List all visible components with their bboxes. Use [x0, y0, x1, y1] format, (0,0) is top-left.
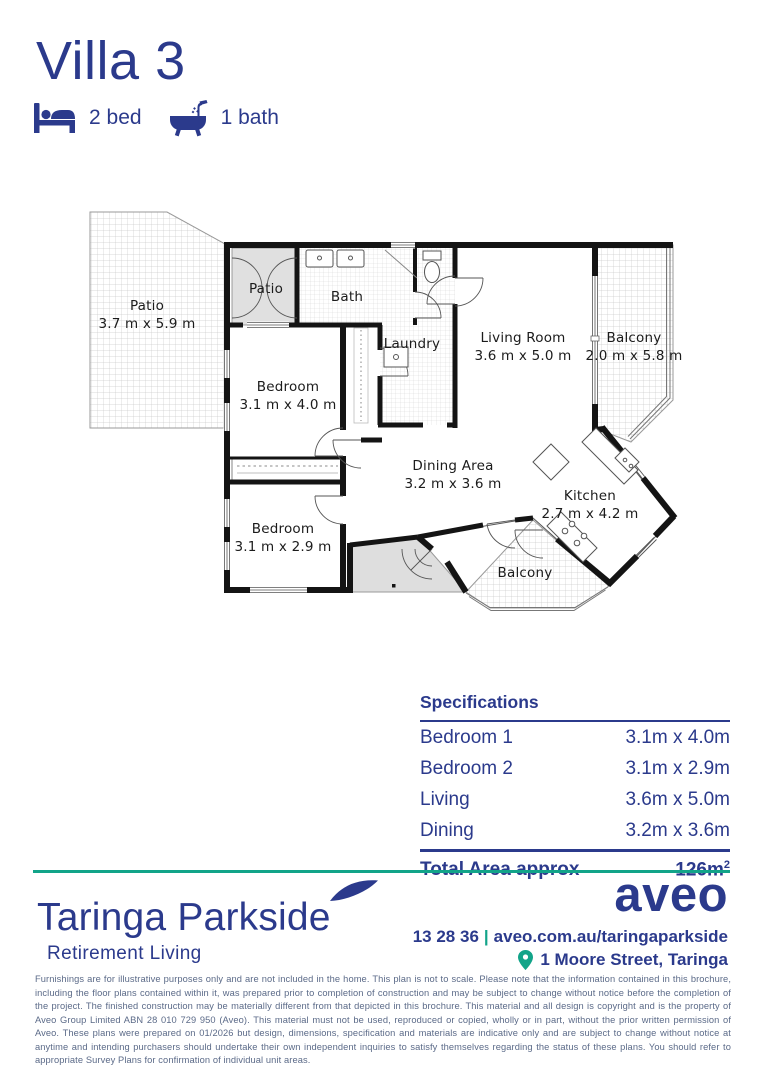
- community-logo: Taringa Parkside: [37, 896, 331, 940]
- bath-icon: [168, 99, 210, 137]
- location-pin-icon: [518, 950, 533, 970]
- address-text: 1 Moore Street, Taringa: [540, 950, 728, 970]
- contact-separator: |: [479, 927, 494, 946]
- room-label-laundry: Laundry: [384, 335, 440, 353]
- feature-bath: 1 bath: [168, 99, 279, 137]
- website: aveo.com.au/taringaparkside: [494, 927, 728, 946]
- specifications-title: Specifications: [420, 692, 730, 722]
- phone-number: 13 28 36: [413, 927, 479, 946]
- table-row: Living 3.6m x 5.0m: [420, 784, 730, 815]
- spec-value: 3.6m x 5.0m: [625, 789, 730, 811]
- spec-label: Bedroom 2: [420, 758, 513, 780]
- floor-plan-drawing: [85, 200, 705, 645]
- room-label-dining: Dining Area3.2 m x 3.6 m: [405, 457, 502, 493]
- leaf-icon: [328, 879, 380, 908]
- brochure-page: Villa 3 2 bed: [0, 0, 764, 1080]
- room-label-balcony-right: Balcony2.0 m x 5.8 m: [586, 329, 683, 365]
- spec-value: 3.1m x 2.9m: [625, 758, 730, 780]
- spec-label: Dining: [420, 820, 474, 842]
- room-label-bedroom-1: Bedroom3.1 m x 4.0 m: [240, 378, 337, 414]
- spec-value: 3.2m x 3.6m: [625, 820, 730, 842]
- aveo-logo: aveo: [614, 869, 728, 921]
- page-title: Villa 3: [36, 30, 186, 92]
- feature-bed-label: 2 bed: [89, 106, 142, 130]
- community-tagline: Retirement Living: [47, 943, 202, 965]
- contact-line: 13 28 36|aveo.com.au/taringaparkside: [413, 927, 728, 947]
- feature-row: 2 bed 1 bath: [32, 99, 305, 137]
- room-label-living: Living Room3.6 m x 5.0 m: [475, 329, 572, 365]
- room-label-balcony-bottom: Balcony: [498, 564, 553, 582]
- table-row: Bedroom 2 3.1m x 2.9m: [420, 753, 730, 784]
- room-label-bedroom-2: Bedroom3.1 m x 2.9 m: [235, 520, 332, 556]
- specifications-table: Specifications Bedroom 1 3.1m x 4.0m Bed…: [420, 692, 730, 881]
- spec-value: 3.1m x 4.0m: [625, 727, 730, 749]
- room-label-kitchen: Kitchen2.7 m x 4.2 m: [542, 487, 639, 523]
- feature-bath-label: 1 bath: [221, 106, 279, 130]
- room-label-bath: Bath: [331, 288, 363, 306]
- table-row: Bedroom 1 3.1m x 4.0m: [420, 722, 730, 753]
- address-line: 1 Moore Street, Taringa: [518, 950, 728, 970]
- room-label-patio-large: Patio3.7 m x 5.9 m: [99, 297, 196, 333]
- disclaimer-text: Furnishings are for illustrative purpose…: [35, 973, 731, 1068]
- spec-label: Living: [420, 789, 470, 811]
- room-label-patio-small: Patio: [249, 280, 283, 298]
- table-row: Dining 3.2m x 3.6m: [420, 815, 730, 846]
- bed-icon: [32, 101, 78, 135]
- floor-plan: Patio3.7 m x 5.9 m Patio Bath Laundry Li…: [85, 200, 705, 645]
- spec-label: Bedroom 1: [420, 727, 513, 749]
- feature-bed: 2 bed: [32, 101, 142, 135]
